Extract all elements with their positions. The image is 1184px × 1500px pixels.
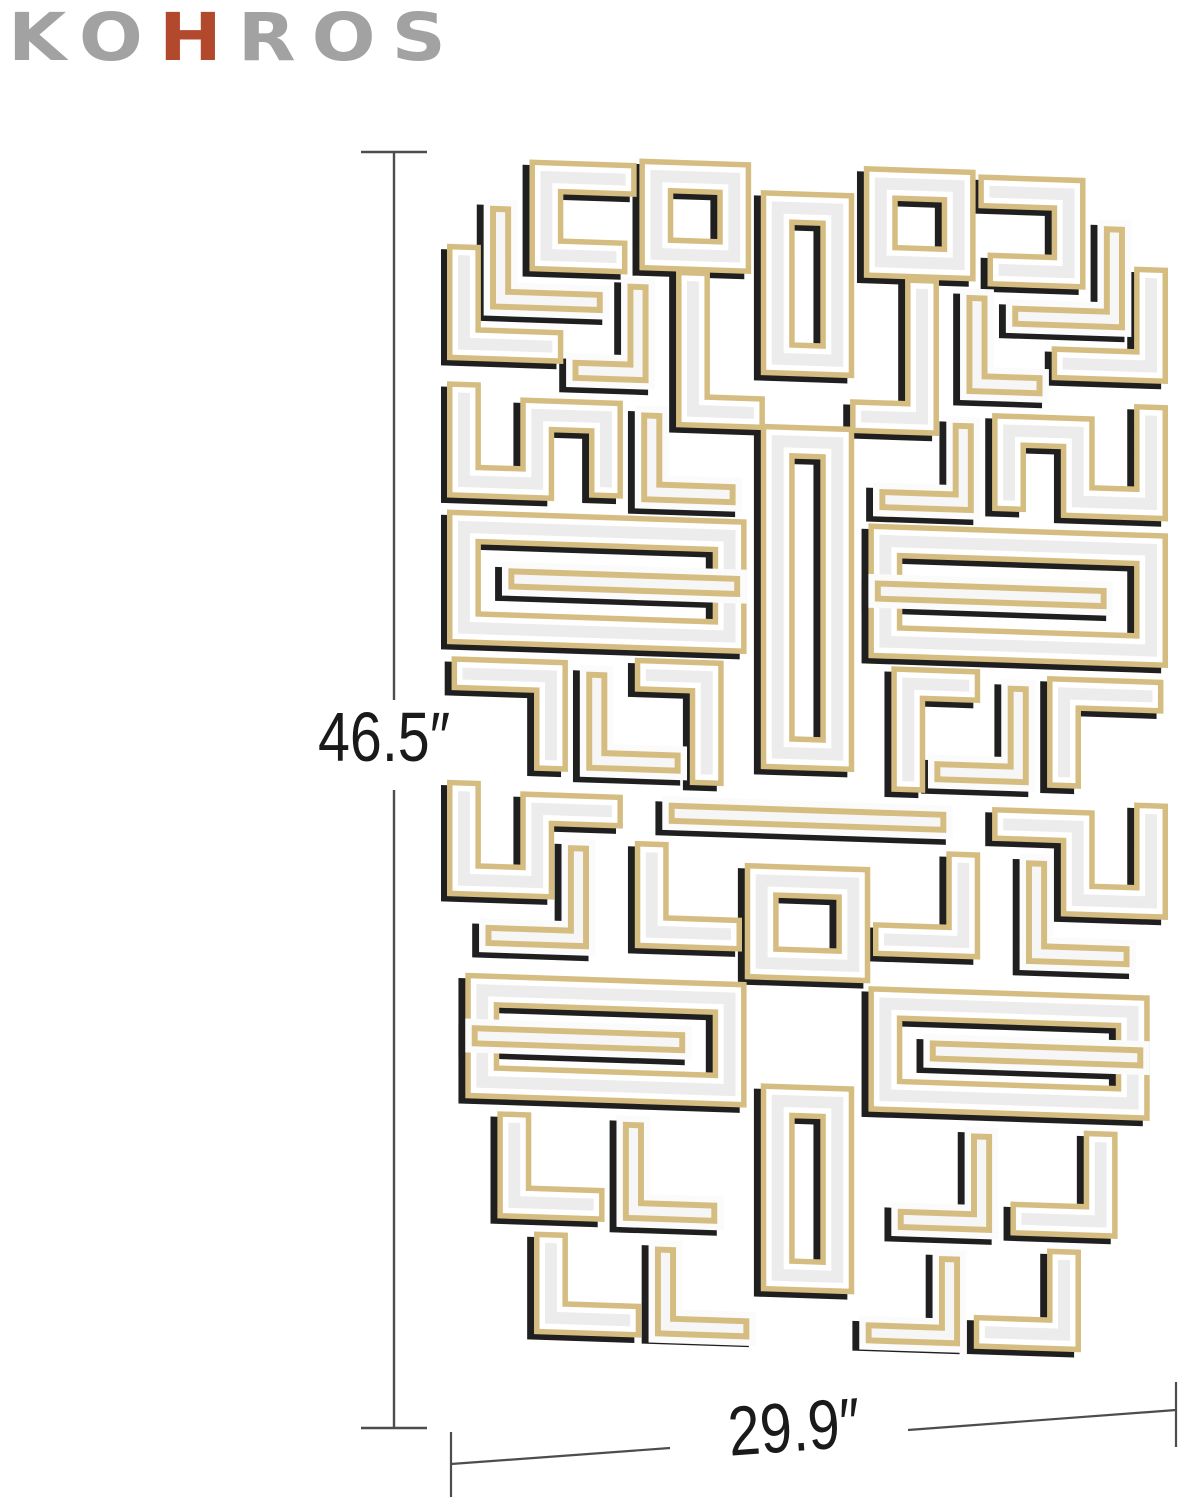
mirror-strip [1027, 1146, 1100, 1222]
mirror-strip [991, 1264, 1064, 1335]
mirror-strip [652, 858, 725, 934]
mirror-strip [482, 1036, 674, 1042]
width-dim-line-right [908, 1410, 1176, 1430]
width-dim-line-left [451, 1448, 670, 1464]
mirror-strip [693, 287, 748, 413]
mirror-artwork [441, 146, 1174, 1361]
height-dimension [361, 152, 427, 1428]
mirror-strip [867, 293, 922, 419]
height-dimension-label: 46.5″ [317, 702, 451, 772]
mirror-strip [778, 1101, 838, 1277]
mirror-strip [778, 441, 838, 754]
width-dimension-label: 29.9″ [703, 1386, 885, 1469]
mirror-strip [551, 1249, 624, 1320]
mirror-strip [514, 1129, 587, 1205]
mirror-strip [940, 1051, 1132, 1057]
product-dimension-diagram: KOHROS 46.5″ 29.9″ [0, 0, 1184, 1500]
mirror-strip [890, 866, 963, 942]
mirror-strip-layer [464, 170, 1151, 1343]
mirror-maze-svg [441, 146, 1174, 1361]
